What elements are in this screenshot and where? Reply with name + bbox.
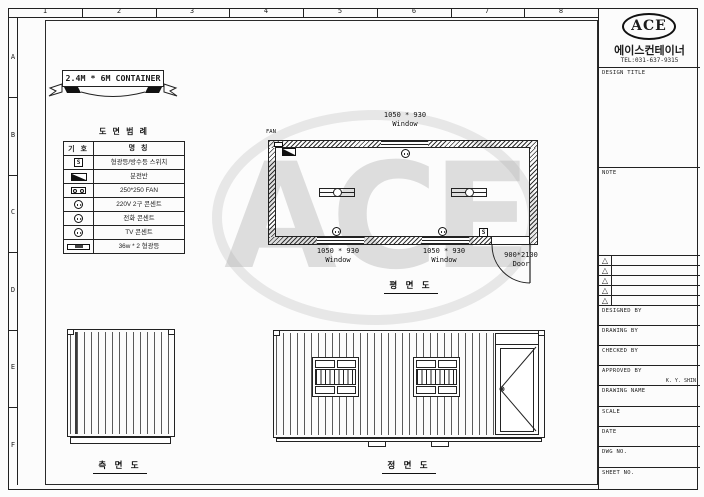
outlet-icon <box>74 200 83 209</box>
front-view-foot <box>368 441 386 447</box>
legend-title: 도 면 범 례 <box>63 126 185 137</box>
switch-icon: S <box>479 228 488 237</box>
tv-outlet-icon <box>74 228 83 237</box>
grid-tick <box>8 175 17 176</box>
revision-triangle-icon: △ <box>599 276 612 285</box>
plan-view: S <box>268 140 538 245</box>
column-label: 8 <box>555 7 567 15</box>
revision-triangle-icon: △ <box>599 286 612 295</box>
front-door <box>495 333 539 435</box>
front-window <box>413 357 460 397</box>
legend-row: S 형광등/방수등 스위치 <box>64 156 184 170</box>
plan-inner-outline <box>275 147 530 237</box>
field-checked-by: CHECKED BY <box>599 346 700 366</box>
corner-fitting-icon <box>273 330 280 336</box>
fan-icon <box>274 142 283 147</box>
panel-icon <box>71 173 87 181</box>
field-drawing-name: DRAWING NAME <box>599 386 700 407</box>
legend-name: 36w * 2 형광등 <box>94 243 184 250</box>
fluorescent-light-icon <box>319 188 355 197</box>
legend-table: 기 호 명 칭 S 형광등/방수등 스위치 분전반 250*250 FAN 22… <box>63 141 185 254</box>
revision-triangle-icon: △ <box>599 296 612 305</box>
front-window <box>312 357 359 397</box>
legend-name: 전화 콘센트 <box>94 215 184 222</box>
row-label: F <box>9 441 17 449</box>
legend-row: 36w * 2 형광등 <box>64 240 184 253</box>
column-label: 1 <box>39 7 51 15</box>
window-dimension-label: 1050 * 930 Window <box>288 247 388 265</box>
front-view-foot <box>431 441 449 447</box>
field-designed-by: DESIGNED BY <box>599 306 700 326</box>
switch-icon: S <box>74 158 83 167</box>
grid-tick <box>156 8 157 17</box>
side-view-base <box>70 437 171 444</box>
field-scale: SCALE <box>599 407 700 427</box>
legend-name: 250*250 FAN <box>94 187 184 194</box>
row-label: C <box>9 208 17 216</box>
legend-row: TV 콘센트 <box>64 226 184 240</box>
legend-header-name: 명 칭 <box>94 145 184 152</box>
title-banner: 2.4M * 6M CONTAINER <box>62 70 164 87</box>
legend-row: 220V 2구 콘센트 <box>64 198 184 212</box>
door-transom <box>496 334 538 345</box>
column-label: 7 <box>481 7 493 15</box>
corner-fitting-icon <box>67 329 74 335</box>
row-strip-line <box>17 18 18 485</box>
revision-triangle-icon: △ <box>599 256 612 265</box>
window-grille <box>315 369 356 385</box>
fluorescent-light-icon <box>451 188 487 197</box>
grid-tick <box>8 252 17 253</box>
outlet-icon <box>438 227 447 236</box>
corner-fitting-icon <box>538 330 545 336</box>
grid-tick <box>524 8 525 17</box>
note-label: NOTE <box>602 170 616 176</box>
field-drawing-by: DRAWING BY <box>599 326 700 346</box>
design-title-label: DESIGN TITLE <box>602 70 645 76</box>
front-view-title: 정 면 도 <box>382 459 436 474</box>
grid-tick <box>8 407 17 408</box>
fan-icon <box>71 187 86 194</box>
plan-view-title: 평 면 도 <box>384 279 438 294</box>
window-dimension-label: 1050 * 930 Window <box>394 247 494 265</box>
plan-wall-right <box>530 148 537 237</box>
grid-tick <box>8 330 17 331</box>
plan-window-top <box>381 141 428 148</box>
design-title-section: DESIGN TITLE <box>599 68 700 168</box>
grid-tick <box>451 8 452 17</box>
front-corrugation <box>276 333 494 435</box>
column-strip-line <box>8 17 598 18</box>
field-sheet-no: SHEET NO. <box>599 468 700 489</box>
tel-outlet-icon <box>74 214 83 223</box>
plan-window-bottom-right <box>422 237 469 244</box>
legend-name: 분전반 <box>94 173 184 180</box>
side-view <box>67 329 175 437</box>
column-label: 2 <box>113 7 125 15</box>
row-label: A <box>9 53 17 61</box>
column-label: 6 <box>408 7 420 15</box>
grid-tick <box>229 8 230 17</box>
legend-row: 전화 콘센트 <box>64 212 184 226</box>
grid-tick <box>8 97 17 98</box>
side-panel-edge <box>75 332 77 434</box>
row-label: D <box>9 286 17 294</box>
front-view-rail <box>276 438 542 442</box>
revision-triangle-icon: △ <box>599 266 612 275</box>
note-section: NOTE <box>599 168 700 256</box>
plan-door-opening <box>491 237 530 244</box>
legend-name: 220V 2구 콘센트 <box>94 201 184 208</box>
company-tel: TEL:031-637-9315 <box>599 57 700 64</box>
field-approved-by: APPROVED BY K. Y. SHIN <box>599 366 700 386</box>
revision-row: △ <box>599 286 700 296</box>
grid-tick <box>303 8 304 17</box>
legend-row: 250*250 FAN <box>64 184 184 198</box>
legend-name: TV 콘센트 <box>94 229 184 236</box>
corner-fitting-icon <box>168 329 175 335</box>
row-label: B <box>9 131 17 139</box>
company-name: 에이스컨테이너 <box>599 42 700 58</box>
side-view-title: 측 면 도 <box>93 459 147 474</box>
approved-by-value: K. Y. SHIN <box>666 378 696 384</box>
revision-row: △ <box>599 296 700 306</box>
company-section: ACE 에이스컨테이너 TEL:031-637-9315 <box>599 8 700 68</box>
column-label: 5 <box>334 7 346 15</box>
window-dimension-label: 1050 * 930 Window <box>355 111 455 129</box>
column-label: 3 <box>186 7 198 15</box>
field-dwg-no: DWG NO. <box>599 447 700 468</box>
distribution-panel-icon <box>282 148 296 156</box>
side-corrugation <box>70 332 172 434</box>
title-block: ACE 에이스컨테이너 TEL:031-637-9315 DESIGN TITL… <box>598 8 699 489</box>
outlet-icon <box>332 227 341 236</box>
row-label: E <box>9 363 17 371</box>
outlet-icon <box>401 149 410 158</box>
revision-row: △ <box>599 256 700 266</box>
field-date: DATE <box>599 427 700 447</box>
legend-header-row: 기 호 명 칭 <box>64 142 184 156</box>
fan-label: FAN <box>266 128 290 137</box>
revision-row: △ <box>599 266 700 276</box>
door-panel <box>500 348 534 432</box>
banner-title: 2.4M * 6M CONTAINER <box>63 71 163 86</box>
revision-row: △ <box>599 276 700 286</box>
column-label: 4 <box>260 7 272 15</box>
legend-header-symbol: 기 호 <box>64 142 94 155</box>
legend-name: 형광등/방수등 스위치 <box>94 159 184 166</box>
grid-tick <box>377 8 378 17</box>
drawing-sheet: ACE 1 2 3 4 5 6 7 8 A B C D E F 2.4M * 6… <box>0 0 704 497</box>
legend-row: 분전반 <box>64 170 184 184</box>
front-view <box>273 330 545 438</box>
grid-tick <box>82 8 83 17</box>
window-grille <box>416 369 457 385</box>
door-dimension-label: 900*2100 Door <box>489 251 553 269</box>
plan-window-bottom-left <box>317 237 364 244</box>
ace-logo: ACE <box>622 13 676 40</box>
lamp-icon <box>67 244 90 250</box>
